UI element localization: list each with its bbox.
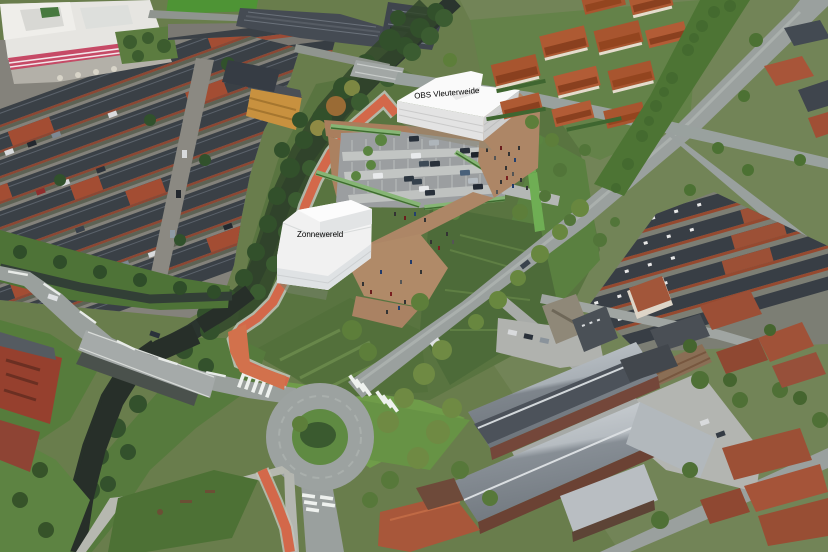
svg-text:Zonnewereld: Zonnewereld — [297, 230, 343, 239]
